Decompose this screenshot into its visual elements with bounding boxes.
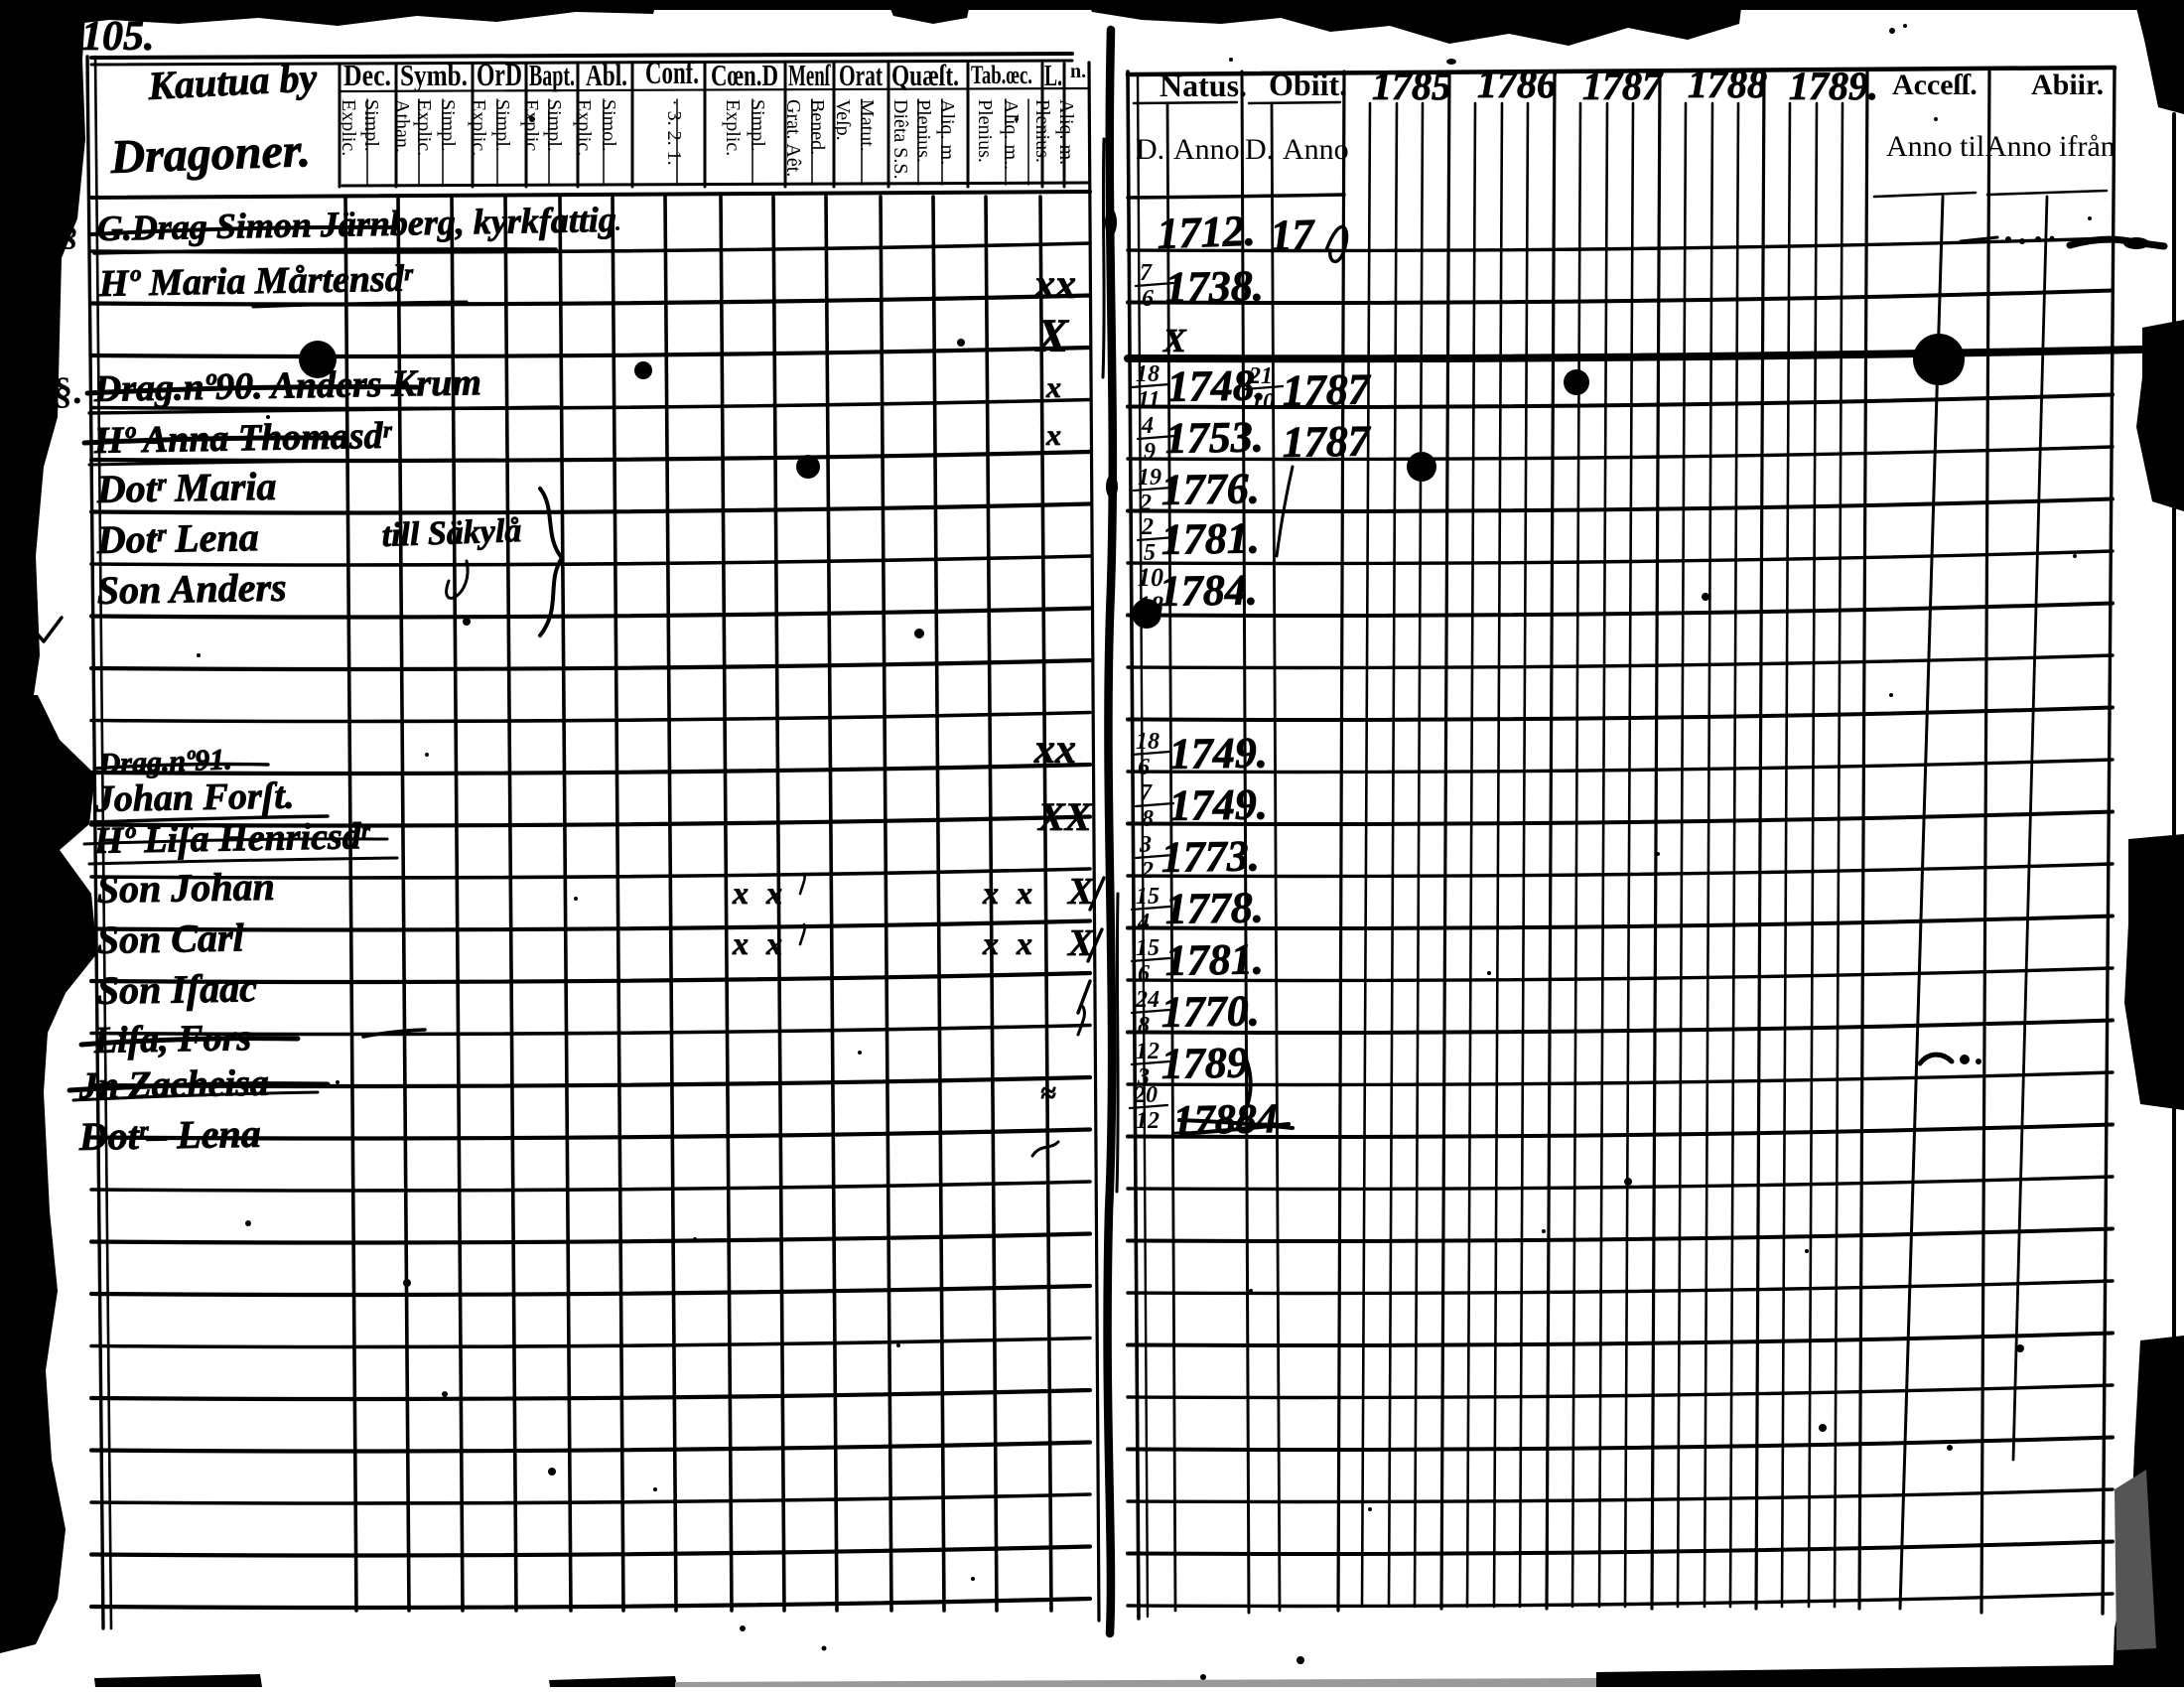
svg-text:Conf.: Conf. <box>645 56 699 91</box>
svg-text:≈: ≈ <box>1040 1078 1056 1109</box>
svg-text:1712.: 1712. <box>1157 207 1257 258</box>
svg-text:Simpl.: Simpl. <box>491 99 513 152</box>
svg-text:Simpl.: Simpl. <box>437 99 459 152</box>
svg-text:x: x <box>765 925 782 961</box>
svg-text:1789.: 1789. <box>1789 64 1878 108</box>
svg-text:Explic.: Explic. <box>520 99 542 156</box>
svg-text:Abiir.: Abiir. <box>2031 69 2104 101</box>
svg-text:24: 24 <box>1135 987 1160 1013</box>
svg-text:1781.: 1781. <box>1164 934 1264 985</box>
svg-text:Simpl.: Simpl. <box>360 99 382 152</box>
svg-text:Anno til: Anno til <box>1886 130 1984 163</box>
svg-text:Son Iſaac: Son Iſaac <box>96 965 257 1013</box>
svg-text:n.: n. <box>1070 61 1086 82</box>
svg-text:x: x <box>1045 371 1061 404</box>
svg-text:Matut.: Matut. <box>856 99 878 152</box>
svg-text:15: 15 <box>1136 884 1160 910</box>
svg-text:Anno: Anno <box>1283 133 1349 166</box>
svg-text:18: 18 <box>1136 361 1160 387</box>
svg-text:xx: xx <box>1033 262 1076 308</box>
svg-text:1770.: 1770. <box>1160 986 1260 1037</box>
svg-text:Plenius.: Plenius. <box>974 99 996 163</box>
svg-text:1749.: 1749. <box>1168 779 1268 830</box>
svg-text:1787: 1787 <box>1282 364 1372 415</box>
svg-text:12: 12 <box>1136 1039 1160 1064</box>
svg-text:Bapt.: Bapt. <box>529 58 575 92</box>
svg-text:6: 6 <box>1142 286 1154 312</box>
svg-text:x: x <box>765 875 782 911</box>
svg-text:8: 8 <box>1138 1013 1150 1039</box>
svg-text:Son Carl: Son Carl <box>96 915 245 962</box>
svg-text:Plenius.: Plenius. <box>912 99 934 163</box>
svg-text:Diêta S.S.: Diêta S.S. <box>889 99 911 180</box>
svg-text:17: 17 <box>1270 210 1317 260</box>
svg-text:Kautua by: Kautua by <box>146 55 318 108</box>
svg-text:Explic.: Explic. <box>413 99 435 156</box>
svg-text:· 3. 2. 1.: · 3. 2. 1. <box>663 99 685 166</box>
svg-text:Drag.nº91.: Drag.nº91. <box>97 743 232 780</box>
svg-text:1789: 1789 <box>1160 1038 1249 1088</box>
svg-text:Acceſſ.: Acceſſ. <box>1892 69 1978 101</box>
svg-text:1786: 1786 <box>1477 62 1557 106</box>
svg-text:Dotʳ Maria: Dotʳ Maria <box>95 464 276 511</box>
svg-text:1776.: 1776. <box>1160 464 1260 514</box>
svg-text:Abl.: Abl. <box>586 58 627 92</box>
svg-text:Hº Maria Mårtensdʳ: Hº Maria Mårtensdʳ <box>97 257 414 305</box>
svg-text:1778.: 1778. <box>1164 883 1264 933</box>
svg-text:XX: XX <box>1036 794 1093 839</box>
svg-text:Tab.œc.: Tab.œc. <box>971 61 1032 89</box>
svg-text:Grat. Aêt.: Grat. Aêt. <box>782 99 804 177</box>
svg-text:Explic.: Explic. <box>722 99 744 156</box>
svg-text:18: 18 <box>1136 729 1160 755</box>
svg-text:Plenius.: Plenius. <box>1031 99 1053 163</box>
svg-text:7: 7 <box>1140 260 1153 286</box>
svg-text:x: x <box>1045 419 1061 452</box>
svg-text:Simpl.: Simpl. <box>543 99 565 152</box>
svg-text:15: 15 <box>1136 935 1160 961</box>
svg-text:10: 10 <box>1251 389 1275 415</box>
svg-text:2: 2 <box>1139 491 1152 516</box>
svg-text:1738.: 1738. <box>1164 261 1264 312</box>
svg-text:D.: D. <box>1245 133 1274 166</box>
svg-text:x: x <box>982 925 999 961</box>
svg-text:Explic.: Explic. <box>573 99 595 156</box>
svg-text:x: x <box>1016 875 1032 911</box>
svg-text:2: 2 <box>1141 514 1154 540</box>
svg-text:OrD: OrD <box>477 58 522 93</box>
svg-text:X: X <box>1162 323 1187 359</box>
svg-text:Aliq. m..: Aliq. m.. <box>1000 99 1022 170</box>
svg-text:4: 4 <box>1141 413 1154 439</box>
svg-text:x: x <box>1016 925 1032 961</box>
svg-text:1787: 1787 <box>1582 64 1664 108</box>
svg-text:Orat: Orat <box>839 58 883 92</box>
svg-text:till Säkylå: till Säkylå <box>381 512 522 554</box>
svg-text:1753.: 1753. <box>1164 412 1264 463</box>
svg-text:x: x <box>982 875 999 911</box>
svg-text:Aliq. m.: Aliq. m. <box>1055 99 1077 165</box>
svg-text:Dotʳ– Lena: Dotʳ– Lena <box>77 1111 261 1159</box>
svg-text:L.: L. <box>1044 58 1062 92</box>
svg-text:Dec.: Dec. <box>343 58 391 92</box>
svg-text:1788: 1788 <box>1688 62 1767 106</box>
svg-text:Athan.: Athan. <box>391 99 413 153</box>
svg-text:Natus.: Natus. <box>1160 68 1247 103</box>
svg-text:1784.: 1784. <box>1159 565 1258 616</box>
svg-text:1781.: 1781. <box>1160 513 1260 564</box>
svg-text:Dragoner.: Dragoner. <box>109 124 312 184</box>
svg-text:Veſp.: Veſp. <box>832 99 854 141</box>
svg-text:Simpl.: Simpl. <box>747 99 768 152</box>
svg-text:8: 8 <box>1142 806 1154 832</box>
svg-text:20: 20 <box>1133 1082 1158 1108</box>
svg-text:x: x <box>732 875 749 911</box>
svg-text:11: 11 <box>1138 387 1160 413</box>
svg-text:Son Anders: Son Anders <box>96 565 287 613</box>
svg-text:1749.: 1749. <box>1168 728 1268 778</box>
svg-text:Bened.: Bened. <box>806 99 828 155</box>
svg-text:6: 6 <box>1138 961 1150 987</box>
svg-text:Johan Forſt.: Johan Forſt. <box>93 775 294 821</box>
svg-text:Explic.: Explic. <box>338 99 359 156</box>
svg-text:xx: xx <box>1033 727 1076 773</box>
svg-text:Aliq. m.: Aliq. m. <box>936 99 958 165</box>
svg-text:Anno ifrån: Anno ifrån <box>1985 130 2116 163</box>
svg-text:X: X <box>1034 310 1069 362</box>
svg-text:x: x <box>732 925 749 961</box>
svg-text:12: 12 <box>1136 1108 1160 1134</box>
svg-text:2: 2 <box>1141 858 1154 884</box>
svg-text:Symb.: Symb. <box>400 58 468 92</box>
svg-text:4: 4 <box>1137 910 1150 935</box>
svg-text:D.: D. <box>1136 133 1164 166</box>
svg-text:9: 9 <box>1144 439 1156 465</box>
svg-text:Cœn.D: Cœn.D <box>711 58 778 92</box>
svg-text:1785: 1785 <box>1372 64 1451 108</box>
svg-text:Explic.: Explic. <box>468 99 489 156</box>
svg-text:Obiit.: Obiit. <box>1269 67 1347 102</box>
svg-text:Son Johan: Son Johan <box>96 864 275 912</box>
svg-text:Quæſt.: Quæſt. <box>891 58 959 92</box>
svg-text:1773.: 1773. <box>1160 831 1260 882</box>
svg-text:21: 21 <box>1248 363 1273 389</box>
svg-text:1787: 1787 <box>1282 416 1372 467</box>
svg-text:3: 3 <box>1139 832 1152 858</box>
svg-text:6: 6 <box>1138 755 1150 780</box>
svg-text:7: 7 <box>1140 780 1153 806</box>
svg-text:Dotʳ Lena: Dotʳ Lena <box>95 514 259 562</box>
svg-text:Menſ: Menſ <box>788 58 831 92</box>
svg-text:Simol.: Simol. <box>598 99 619 152</box>
svg-text:19: 19 <box>1138 465 1161 491</box>
svg-text:Anno: Anno <box>1173 133 1240 166</box>
